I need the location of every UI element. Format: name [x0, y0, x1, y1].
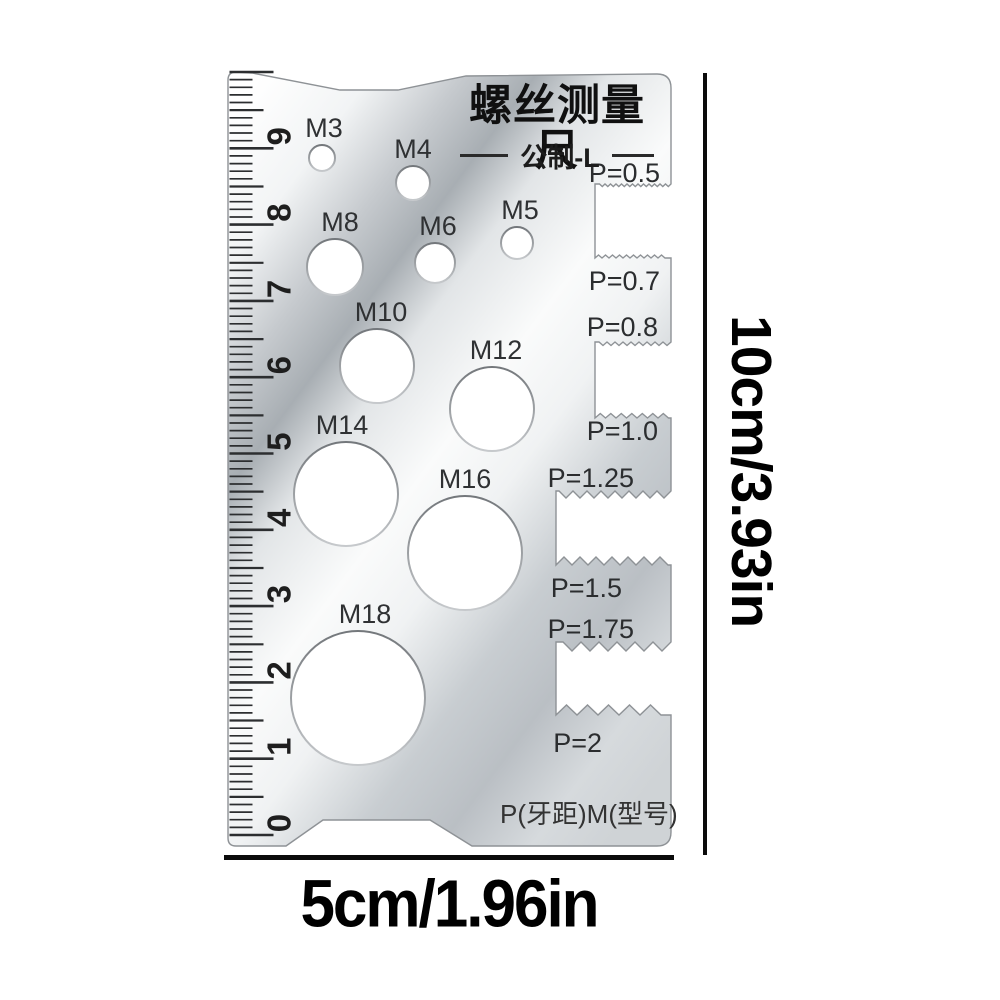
- hole-label: M5: [501, 195, 539, 225]
- hole-label: M10: [355, 297, 408, 327]
- ruler-number: 2: [261, 661, 298, 679]
- pitch-label: P=1.75: [548, 614, 634, 644]
- height-dimension-label: 10cm/3.93in: [718, 315, 784, 627]
- ruler-number: 0: [261, 814, 298, 832]
- card-footer-label: P(牙距)M(型号): [500, 794, 680, 831]
- thread-hole-m8: [307, 239, 363, 295]
- thread-hole-m14: [294, 442, 398, 546]
- thread-hole-m4: [396, 166, 430, 200]
- ruler-number: 8: [261, 203, 298, 221]
- hole-label: M14: [316, 410, 369, 440]
- ruler-number: 7: [261, 280, 298, 298]
- height-dimension-line: [703, 73, 707, 855]
- subtitle-rule-right: [612, 154, 654, 157]
- thread-hole-m6: [415, 243, 455, 283]
- pitch-label: P=2: [553, 728, 602, 758]
- hole-label: M12: [470, 335, 523, 365]
- product-photo: 0123456789 M3M4M5M6M8M10M12M14M16M18 P=0…: [0, 0, 1000, 1000]
- ruler-number: 3: [261, 585, 298, 603]
- hole-label: M4: [394, 134, 432, 164]
- card-silhouette: [228, 72, 671, 846]
- subtitle-rule-left: [460, 154, 508, 157]
- ruler-number: 4: [261, 508, 298, 527]
- thread-hole-m10: [340, 329, 414, 403]
- hole-label: M3: [305, 113, 343, 143]
- ruler-number: 9: [261, 127, 298, 145]
- thread-hole-m3: [309, 145, 335, 171]
- pitch-label: P=0.8: [587, 312, 658, 342]
- thread-hole-m16: [408, 496, 522, 610]
- pitch-label: P=1.0: [587, 416, 658, 446]
- width-dimension-label: 5cm/1.96in: [224, 866, 674, 943]
- ruler-number: 6: [261, 356, 298, 374]
- width-dimension-line: [224, 855, 674, 860]
- hole-label: M8: [321, 207, 359, 237]
- card-subtitle-row: 公制-L: [448, 136, 666, 175]
- card-subtitle: 公制-L: [520, 136, 599, 175]
- pitch-label: P=0.7: [589, 266, 660, 296]
- thread-hole-m18: [291, 631, 425, 765]
- hole-label: M18: [339, 599, 392, 629]
- thread-hole-m5: [501, 227, 533, 259]
- thread-hole-m12: [450, 367, 534, 451]
- pitch-label: P=1.25: [548, 463, 634, 493]
- pitch-label: P=1.5: [551, 573, 622, 603]
- hole-label: M6: [419, 211, 457, 241]
- ruler-number: 1: [261, 738, 298, 756]
- ruler-number: 5: [261, 432, 298, 450]
- hole-label: M16: [439, 464, 492, 494]
